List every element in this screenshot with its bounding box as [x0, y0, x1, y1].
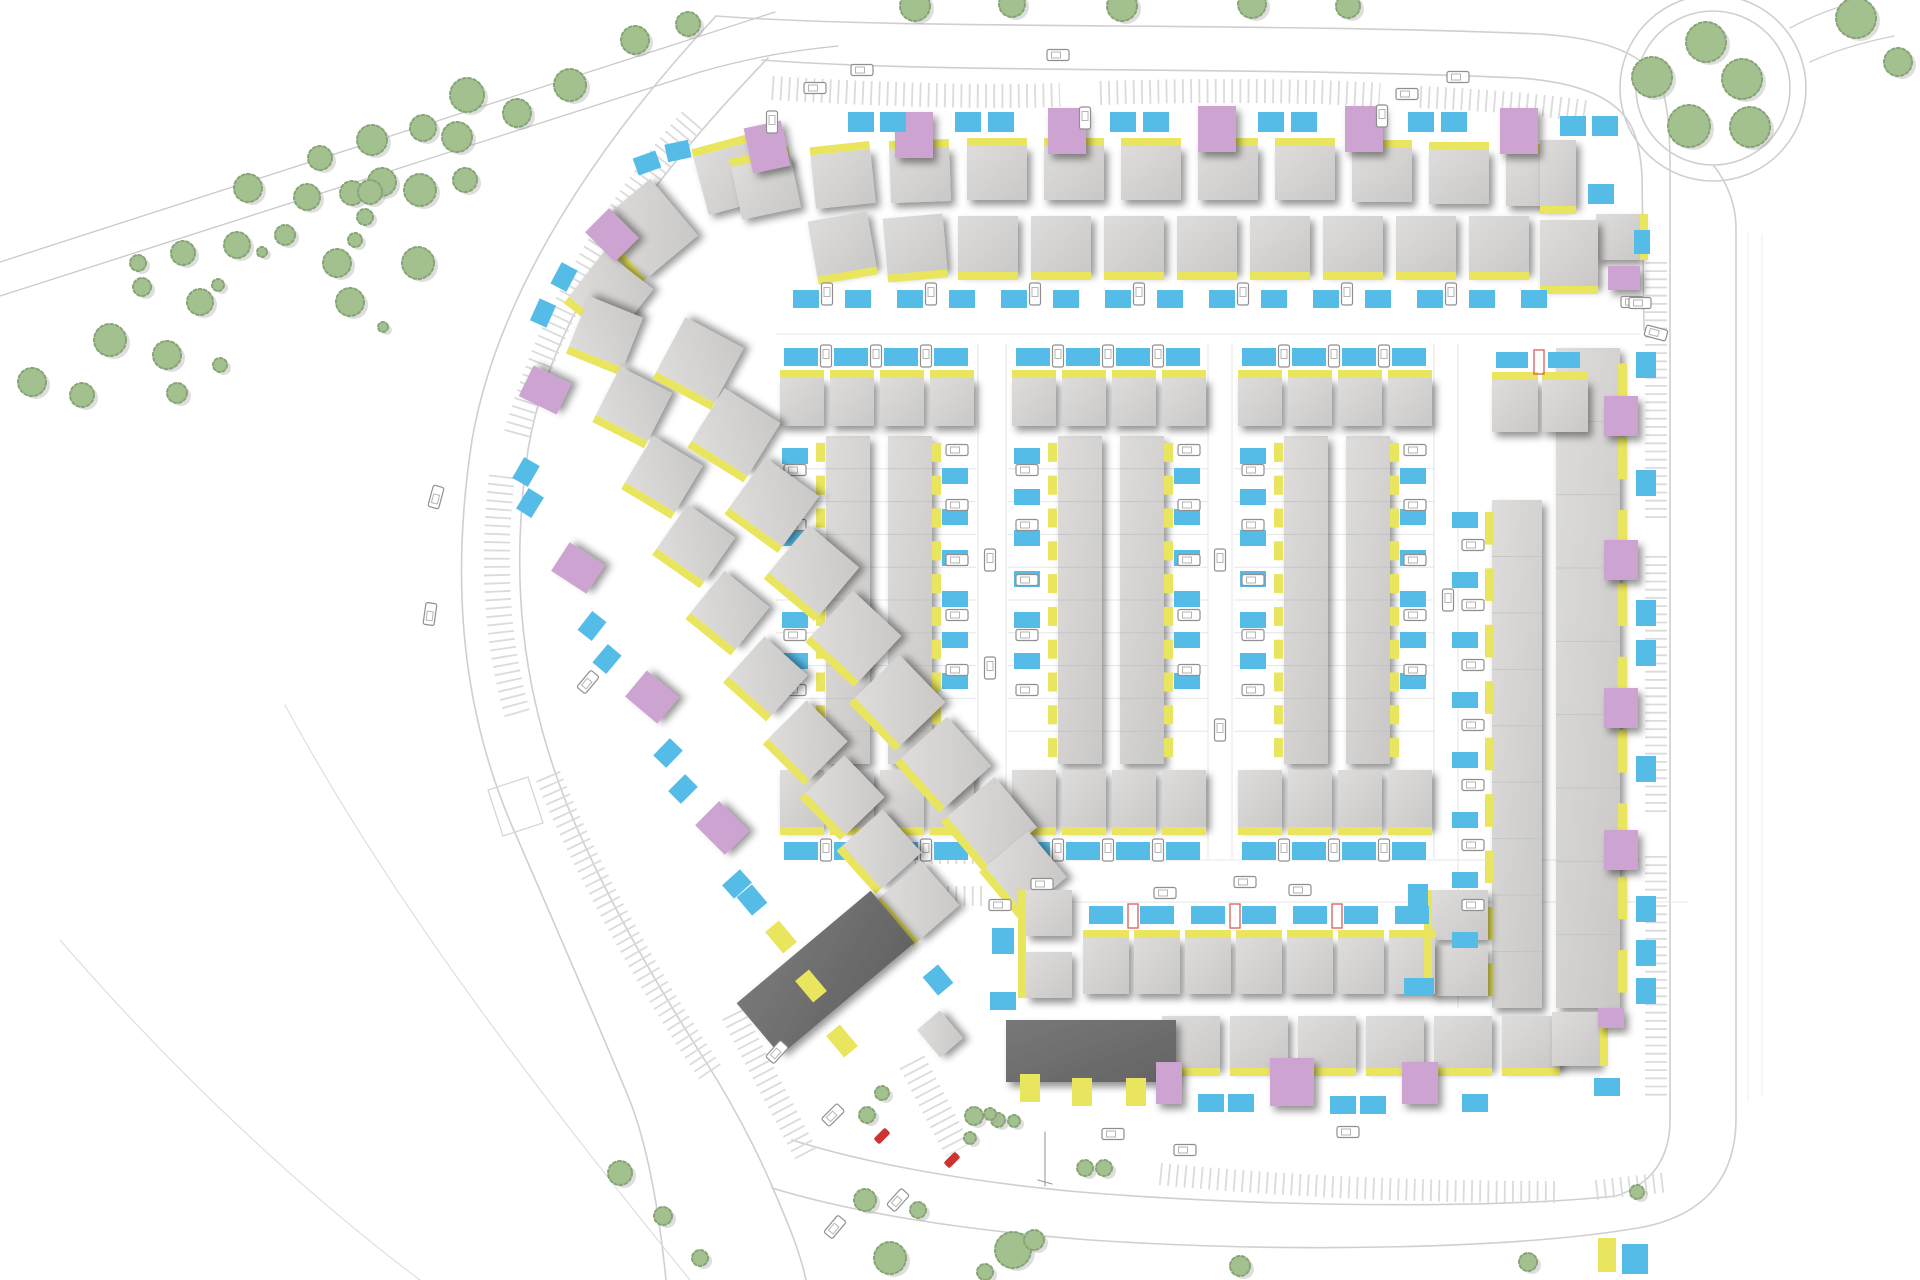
parking-space: [1560, 116, 1586, 136]
car-icon: [1462, 600, 1484, 611]
car-icon: [1279, 345, 1290, 367]
car-body: [423, 602, 437, 625]
parking-space: [1014, 448, 1040, 464]
car-body: [1242, 630, 1264, 641]
parking-space: [1452, 512, 1478, 528]
parking-space: [990, 992, 1016, 1010]
entrance-strip: [1164, 640, 1173, 659]
house-footprint: [1062, 770, 1106, 827]
parking-space: [1014, 612, 1040, 628]
parking-space: [1240, 653, 1266, 669]
car-icon: [1103, 839, 1114, 861]
parking-space: [949, 290, 975, 308]
tree-canopy: [18, 368, 46, 396]
parking-space: [1240, 448, 1266, 464]
car-icon: [1342, 283, 1353, 305]
entrance-strip: [1048, 476, 1057, 495]
entrance-strip: [1288, 827, 1332, 835]
entrance-strip: [880, 370, 924, 378]
entrance-strip: [1274, 541, 1283, 560]
car-body: [946, 445, 968, 456]
tree-canopy: [402, 247, 434, 279]
entrance-strip: [1485, 851, 1494, 884]
car-body: [851, 65, 873, 76]
parking-space: [1344, 906, 1378, 924]
car-icon: [1080, 107, 1091, 129]
house-footprint: [883, 213, 948, 274]
car-body: [804, 83, 826, 94]
tree-icon: [130, 255, 150, 274]
car-icon: [1178, 610, 1200, 621]
tree-icon: [357, 125, 391, 158]
house-block: [1236, 930, 1282, 994]
car-body: [946, 665, 968, 676]
parking-space: [942, 468, 968, 484]
tree-canopy: [1096, 1160, 1112, 1176]
car-body: [1462, 540, 1484, 551]
car-body: [1103, 839, 1114, 861]
tree-icon: [1519, 1253, 1541, 1274]
entrance-strip: [1287, 930, 1333, 938]
entrance-strip: [780, 370, 824, 378]
parking-space: [1293, 906, 1327, 924]
house-block: [1062, 770, 1106, 835]
house-footprint: [808, 211, 877, 277]
parking-bays: [1160, 1174, 1556, 1192]
tree-canopy: [336, 288, 364, 316]
entrance-strip: [1618, 950, 1627, 993]
entrance-strip: [1485, 512, 1494, 545]
tree-icon: [348, 233, 366, 250]
car-icon: [1153, 345, 1164, 367]
car-icon: [1215, 549, 1226, 571]
parking-space: [1191, 906, 1225, 924]
entrance-strip: [1048, 541, 1057, 560]
parking-space: [1330, 1096, 1356, 1114]
house-footprint: [830, 378, 874, 426]
house-footprint: [1031, 216, 1091, 272]
tree-icon: [1884, 48, 1916, 79]
car-body: [985, 657, 996, 679]
tree-canopy: [212, 279, 224, 291]
entrance-strip: [1485, 625, 1494, 658]
car-body: [1030, 283, 1041, 305]
tree-icon: [404, 174, 440, 209]
house-block: [1502, 1016, 1560, 1076]
tree-canopy: [348, 233, 362, 247]
entrance-strip: [780, 827, 824, 835]
car-body: [1279, 839, 1290, 861]
parking-space: [1452, 632, 1478, 648]
car-body: [1242, 575, 1264, 586]
car-body: [1134, 283, 1145, 305]
parking-space: [1634, 230, 1650, 254]
parking-space: [1636, 940, 1656, 966]
entrance-strip: [1485, 738, 1494, 771]
entrance-strip: [1250, 272, 1310, 280]
car-body: [1242, 520, 1264, 531]
entrance-strip: [1390, 640, 1399, 659]
house-footprint: [1388, 378, 1432, 426]
house-footprint: [1432, 946, 1488, 996]
car-icon: [1178, 500, 1200, 511]
parking-space: [1242, 842, 1276, 860]
entrance-strip: [1104, 272, 1164, 280]
parking-space: [1089, 906, 1123, 924]
house-block: [1432, 946, 1488, 996]
tree-canopy: [453, 168, 477, 192]
tree-icon: [378, 322, 392, 335]
house-footprint: [1469, 216, 1529, 272]
parking-space: [1242, 348, 1276, 366]
tree-canopy: [1238, 0, 1266, 18]
car-body: [1462, 600, 1484, 611]
parking-space: [942, 591, 968, 607]
house-footprint: [1338, 770, 1382, 827]
house-block: [1062, 370, 1106, 426]
tree-canopy: [621, 26, 649, 54]
car-body: [822, 283, 833, 305]
entrance-strip: [967, 138, 1027, 146]
tree-icon: [18, 368, 50, 399]
parking-space: [1174, 632, 1200, 648]
car-body: [1102, 1129, 1124, 1140]
entrance-strip: [1618, 583, 1627, 626]
car-icon: [1377, 105, 1388, 127]
parking-space: [955, 112, 981, 132]
entrance-strip: [1390, 476, 1399, 495]
parking-space: [1441, 112, 1467, 132]
tree-icon: [212, 279, 228, 294]
entrance-strip: [1162, 370, 1206, 378]
parking-space: [1417, 290, 1443, 308]
car-icon: [985, 549, 996, 571]
accent-unit: [1270, 1058, 1314, 1106]
car-icon: [1242, 520, 1264, 531]
house-block: [1134, 930, 1180, 994]
entrance-strip: [1390, 705, 1399, 724]
tree-icon: [621, 26, 653, 57]
car-icon: [1234, 877, 1256, 888]
car-icon: [577, 670, 600, 694]
parking-space: [1636, 978, 1656, 1004]
house-block: [1250, 216, 1310, 280]
car-icon: [1016, 465, 1038, 476]
house-footprint: [1287, 938, 1333, 994]
parking-space: [1014, 489, 1040, 505]
entrance-strip: [1485, 681, 1494, 714]
entrance-strip: [1048, 443, 1057, 462]
parking-space: [1198, 1094, 1224, 1112]
tree-icon: [1730, 107, 1774, 150]
parking-space: [592, 644, 621, 674]
visitor-space: [1128, 904, 1138, 928]
house-block: [1540, 140, 1576, 214]
entrance-strip: [1396, 272, 1456, 280]
entrance-strip: [1031, 272, 1091, 280]
parking-space: [1392, 842, 1426, 860]
house-block: [1177, 216, 1237, 280]
car-body: [985, 549, 996, 571]
car-icon: [1242, 685, 1264, 696]
tree-icon: [1668, 105, 1714, 150]
house-footprint: [1338, 938, 1384, 994]
entrance-strip: [1618, 877, 1627, 920]
car-body: [1016, 465, 1038, 476]
tree-icon: [676, 12, 704, 39]
house-footprint: [1288, 378, 1332, 426]
entrance-strip: [1485, 568, 1494, 601]
parking-space: [1636, 756, 1656, 782]
entrance-strip: [1485, 794, 1494, 827]
tree-canopy: [130, 255, 146, 271]
entrance-strip: [930, 370, 974, 378]
car-icon: [1289, 885, 1311, 896]
parking-space: [1228, 1094, 1254, 1112]
entrance-strip: [1164, 672, 1173, 691]
car-icon: [946, 445, 968, 456]
tree-canopy: [875, 1086, 889, 1100]
road-line: [1038, 1132, 1052, 1186]
parking-space: [1166, 842, 1200, 860]
car-body: [1404, 665, 1426, 676]
house-block: [1162, 370, 1206, 426]
parking-space: [942, 509, 968, 525]
tree-canopy: [404, 174, 436, 206]
tree-canopy: [224, 232, 250, 258]
tree-icon: [1230, 1256, 1254, 1279]
entrance-strip: [816, 476, 825, 495]
house-footprint: [1492, 380, 1538, 432]
car-icon: [804, 83, 826, 94]
house-footprint: [967, 146, 1027, 200]
parking-space: [516, 488, 544, 518]
car-icon: [1178, 555, 1200, 566]
car-body: [871, 345, 882, 367]
parking-space: [1400, 468, 1426, 484]
terrace-footprint: [1492, 500, 1542, 1008]
accent-unit: [1604, 688, 1638, 728]
entrance-strip: [1429, 142, 1489, 150]
tree-icon: [874, 1242, 910, 1277]
tree-icon: [692, 1250, 712, 1269]
car-icon: [766, 1040, 789, 1064]
tree-canopy: [984, 1108, 996, 1120]
parking-space: [1404, 978, 1434, 996]
entrance-strip: [830, 370, 874, 378]
car-body: [926, 283, 937, 305]
car-body: [1377, 105, 1388, 127]
house-block: [1026, 952, 1072, 998]
entrance-strip: [1177, 272, 1237, 280]
parking-space: [1452, 752, 1478, 768]
house-footprint: [1121, 146, 1181, 200]
parking-space: [1521, 290, 1547, 308]
entrance-strip: [1164, 574, 1173, 593]
tree-icon: [308, 146, 336, 173]
car-body: [1031, 879, 1053, 890]
parking-space: [1452, 572, 1478, 588]
car-body: [1446, 283, 1457, 305]
car-icon: [1644, 325, 1668, 341]
visitor-space: [1230, 904, 1240, 928]
tree-canopy: [1077, 1160, 1093, 1176]
entrance-strip: [1121, 138, 1181, 146]
tree-canopy: [503, 99, 531, 127]
car-body: [874, 1128, 891, 1145]
car-body: [821, 839, 832, 861]
site-plan: [0, 0, 1920, 1280]
tree-canopy: [357, 125, 387, 155]
car-icon: [1443, 589, 1454, 611]
building-block: [917, 1011, 963, 1058]
tree-canopy: [1519, 1253, 1537, 1271]
entrance-strip: [1162, 827, 1206, 835]
parking-bays: [497, 476, 518, 716]
car-body: [1016, 520, 1038, 531]
car-icon: [423, 602, 437, 625]
car-icon: [946, 610, 968, 621]
car-icon: [1178, 665, 1200, 676]
tree-canopy: [977, 1264, 993, 1280]
tree-canopy: [1630, 1185, 1644, 1199]
accent-unit: [1604, 830, 1638, 870]
tree-icon: [402, 247, 438, 282]
car-icon: [1154, 888, 1176, 899]
car-icon: [821, 1103, 844, 1126]
car-icon: [1153, 839, 1164, 861]
house-block: [1338, 930, 1384, 994]
house-footprint: [780, 378, 824, 426]
house-footprint: [1542, 380, 1588, 432]
accent-unit: [1156, 1062, 1182, 1104]
tree-canopy: [323, 249, 351, 277]
car-icon: [1279, 839, 1290, 861]
house-block: [1323, 216, 1383, 280]
parking-space: [1174, 468, 1200, 484]
entrance-strip: [826, 1024, 858, 1057]
entrance-strip: [1323, 272, 1383, 280]
car-body: [1178, 445, 1200, 456]
tree-canopy: [70, 383, 94, 407]
parking-space: [1116, 348, 1150, 366]
entrance-strip: [1390, 738, 1399, 757]
car-icon: [1329, 839, 1340, 861]
tree-canopy: [965, 1107, 983, 1125]
car-body: [1447, 72, 1469, 83]
tree-canopy: [1024, 1230, 1044, 1250]
car-icon: [946, 500, 968, 511]
parking-space: [578, 611, 607, 641]
house-footprint: [1366, 1016, 1424, 1068]
car-icon: [1404, 610, 1426, 621]
tree-canopy: [358, 180, 382, 204]
tree-canopy: [1836, 0, 1876, 38]
house-block: [1288, 370, 1332, 426]
parking-bays: [1100, 91, 1380, 95]
house-footprint: [880, 378, 924, 426]
car-icon: [1016, 575, 1038, 586]
house-block: [1540, 220, 1598, 294]
entrance-strip: [1390, 443, 1399, 462]
car-body: [887, 1188, 910, 1212]
house-footprint: [1104, 216, 1164, 272]
car-icon: [1462, 720, 1484, 731]
car-body: [1016, 685, 1038, 696]
car-body: [1404, 500, 1426, 511]
tree-canopy: [608, 1161, 632, 1185]
car-body: [1103, 345, 1114, 367]
parking-space: [834, 348, 868, 366]
entrance-strip: [816, 672, 825, 691]
entrance-strip: [1048, 738, 1057, 757]
parking-space: [1242, 906, 1276, 924]
parking-space: [1496, 352, 1528, 368]
entrance-strip: [1274, 476, 1283, 495]
entrance-strip: [1274, 705, 1283, 724]
car-body: [1153, 345, 1164, 367]
tree-icon: [171, 241, 199, 268]
tree-icon: [1836, 0, 1880, 41]
entrance-strip: [1048, 607, 1057, 626]
house-block: [1162, 770, 1206, 835]
house-footprint: [1540, 220, 1598, 286]
car-icon: [1016, 685, 1038, 696]
house-footprint: [1429, 150, 1489, 204]
car-body: [1153, 839, 1164, 861]
tree-canopy: [1722, 59, 1762, 99]
tree-icon: [70, 383, 98, 410]
entrance-strip: [1388, 370, 1432, 378]
car-body: [1154, 888, 1176, 899]
entrance-strip: [1048, 508, 1057, 527]
parking-space: [1592, 116, 1618, 136]
car-body: [1443, 589, 1454, 611]
car-icon: [1379, 345, 1390, 367]
house-block: [810, 141, 876, 209]
car-body: [1234, 877, 1256, 888]
parking-space: [1174, 591, 1200, 607]
road-line: [1810, 36, 1894, 62]
parking-space: [1209, 290, 1235, 308]
car-body: [1178, 500, 1200, 511]
tree-icon: [1238, 0, 1270, 21]
house-footprint: [1026, 952, 1072, 998]
house-block: [1396, 216, 1456, 280]
house-block: [780, 370, 824, 426]
car-icon: [1462, 840, 1484, 851]
accent-unit: [1500, 108, 1538, 154]
entrance-strip: [1072, 1078, 1092, 1106]
entrance-strip: [1164, 705, 1173, 724]
parking-space: [1636, 600, 1656, 626]
parking-space: [1240, 612, 1266, 628]
car-icon: [1462, 900, 1484, 911]
house-block: [1388, 770, 1432, 835]
car-body: [1379, 345, 1390, 367]
tree-icon: [1008, 1115, 1024, 1130]
parking-space: [653, 738, 683, 768]
tree-canopy: [692, 1250, 708, 1266]
parking-bays: [548, 776, 710, 1072]
tree-canopy: [1008, 1115, 1020, 1127]
house-footprint: [1502, 1016, 1560, 1068]
parking-space: [1636, 640, 1656, 666]
tree-canopy: [676, 12, 700, 36]
tree-icon: [1632, 57, 1676, 100]
entrance-strip: [1164, 443, 1173, 462]
parking-space: [1342, 842, 1376, 860]
